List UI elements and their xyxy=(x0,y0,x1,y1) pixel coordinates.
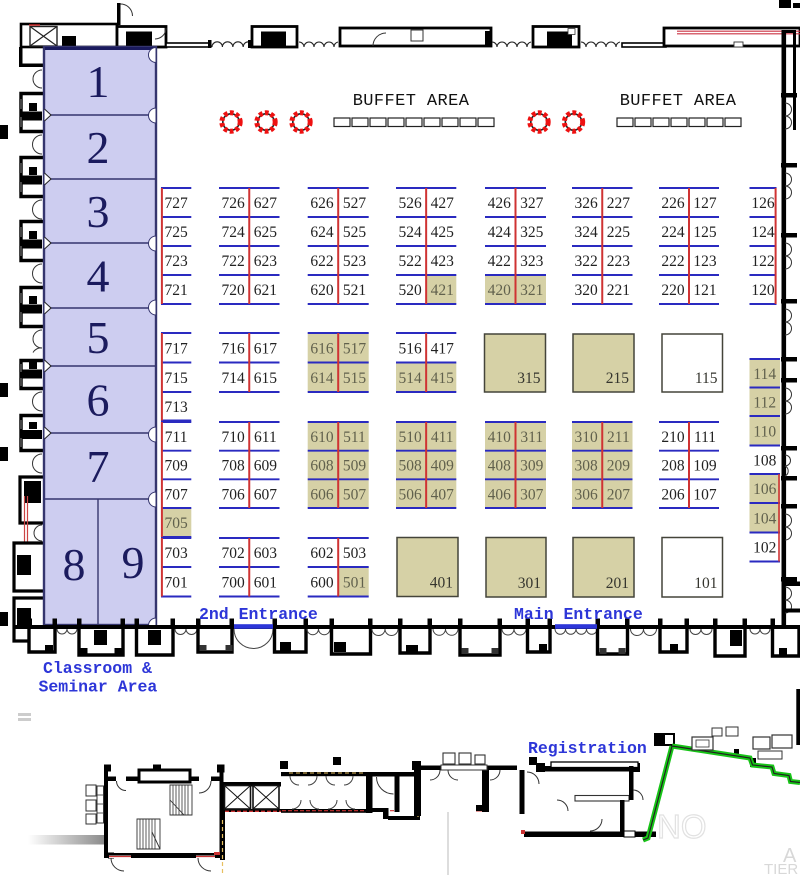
svg-text:501: 501 xyxy=(343,574,366,591)
svg-text:601: 601 xyxy=(254,574,277,591)
svg-text:717: 717 xyxy=(165,340,189,357)
svg-text:326: 326 xyxy=(575,195,599,212)
svg-text:209: 209 xyxy=(607,458,631,475)
svg-text:408: 408 xyxy=(488,458,512,475)
svg-text:Registration: Registration xyxy=(528,739,647,758)
svg-text:407: 407 xyxy=(431,486,455,503)
svg-text:115: 115 xyxy=(695,370,718,387)
svg-text:705: 705 xyxy=(165,515,189,532)
svg-text:420: 420 xyxy=(488,282,512,299)
svg-text:TIER: TIER xyxy=(764,861,798,875)
svg-text:417: 417 xyxy=(431,340,455,357)
svg-text:606: 606 xyxy=(310,486,334,503)
svg-text:716: 716 xyxy=(222,340,246,357)
svg-text:223: 223 xyxy=(607,253,631,270)
svg-text:120: 120 xyxy=(751,282,775,299)
svg-text:627: 627 xyxy=(254,195,278,212)
svg-text:107: 107 xyxy=(693,486,717,503)
svg-text:607: 607 xyxy=(254,486,278,503)
svg-text:711: 711 xyxy=(165,429,188,446)
svg-text:114: 114 xyxy=(753,366,776,383)
svg-text:315: 315 xyxy=(517,370,541,387)
svg-text:310: 310 xyxy=(575,429,599,446)
svg-text:621: 621 xyxy=(254,282,277,299)
svg-text:225: 225 xyxy=(607,224,631,241)
svg-text:714: 714 xyxy=(222,370,246,387)
svg-text:521: 521 xyxy=(343,282,366,299)
svg-text:324: 324 xyxy=(575,224,599,241)
svg-text:321: 321 xyxy=(520,282,543,299)
svg-text:507: 507 xyxy=(343,486,367,503)
svg-text:624: 624 xyxy=(310,224,334,241)
svg-text:701: 701 xyxy=(165,574,188,591)
svg-text:4: 4 xyxy=(87,251,110,302)
svg-text:122: 122 xyxy=(751,253,774,270)
svg-text:509: 509 xyxy=(343,458,367,475)
svg-text:7: 7 xyxy=(87,441,110,492)
svg-text:325: 325 xyxy=(520,224,544,241)
svg-text:525: 525 xyxy=(343,224,367,241)
svg-text:626: 626 xyxy=(310,195,334,212)
svg-text:121: 121 xyxy=(693,282,716,299)
svg-text:508: 508 xyxy=(398,458,422,475)
svg-text:608: 608 xyxy=(310,458,334,475)
svg-text:523: 523 xyxy=(343,253,367,270)
svg-text:111: 111 xyxy=(694,429,716,446)
svg-text:BUFFET AREA: BUFFET AREA xyxy=(620,92,737,111)
svg-text:2nd Entrance: 2nd Entrance xyxy=(199,605,318,624)
svg-text:721: 721 xyxy=(165,282,188,299)
svg-text:424: 424 xyxy=(488,224,512,241)
svg-text:101: 101 xyxy=(694,575,717,592)
svg-text:702: 702 xyxy=(222,545,245,562)
svg-text:401: 401 xyxy=(430,575,453,592)
svg-text:603: 603 xyxy=(254,545,278,562)
svg-text:709: 709 xyxy=(165,458,189,475)
svg-text:422: 422 xyxy=(488,253,511,270)
svg-text:617: 617 xyxy=(254,340,278,357)
svg-text:124: 124 xyxy=(751,224,775,241)
svg-text:NO: NO xyxy=(657,808,707,845)
svg-text:526: 526 xyxy=(398,195,422,212)
svg-text:301: 301 xyxy=(518,575,541,592)
svg-text:411: 411 xyxy=(431,429,454,446)
svg-text:510: 510 xyxy=(398,429,422,446)
svg-text:224: 224 xyxy=(661,224,685,241)
svg-text:8: 8 xyxy=(63,539,86,590)
svg-text:615: 615 xyxy=(254,370,278,387)
svg-text:727: 727 xyxy=(165,195,189,212)
svg-text:307: 307 xyxy=(520,486,544,503)
svg-text:511: 511 xyxy=(343,429,366,446)
svg-text:3: 3 xyxy=(87,186,110,237)
svg-text:622: 622 xyxy=(310,253,333,270)
svg-text:623: 623 xyxy=(254,253,278,270)
svg-text:206: 206 xyxy=(661,486,685,503)
svg-text:5: 5 xyxy=(87,312,110,363)
svg-text:Main Entrance: Main Entrance xyxy=(514,605,643,624)
svg-text:517: 517 xyxy=(343,340,367,357)
svg-text:320: 320 xyxy=(575,282,599,299)
svg-text:102: 102 xyxy=(753,540,776,557)
svg-text:123: 123 xyxy=(693,253,717,270)
svg-text:110: 110 xyxy=(753,423,776,440)
svg-text:609: 609 xyxy=(254,458,278,475)
svg-text:514: 514 xyxy=(398,370,422,387)
svg-text:127: 127 xyxy=(693,195,717,212)
svg-text:625: 625 xyxy=(254,224,278,241)
svg-text:201: 201 xyxy=(606,575,629,592)
svg-text:309: 309 xyxy=(520,458,544,475)
svg-text:713: 713 xyxy=(165,399,189,416)
svg-text:527: 527 xyxy=(343,195,367,212)
svg-text:700: 700 xyxy=(222,574,246,591)
svg-text:423: 423 xyxy=(431,253,455,270)
svg-text:610: 610 xyxy=(310,429,334,446)
svg-text:706: 706 xyxy=(222,486,246,503)
svg-text:720: 720 xyxy=(222,282,246,299)
svg-text:524: 524 xyxy=(398,224,422,241)
svg-text:707: 707 xyxy=(165,486,189,503)
svg-text:415: 415 xyxy=(431,370,455,387)
svg-text:323: 323 xyxy=(520,253,544,270)
svg-text:409: 409 xyxy=(431,458,455,475)
svg-text:503: 503 xyxy=(343,545,367,562)
svg-text:227: 227 xyxy=(607,195,631,212)
svg-text:406: 406 xyxy=(488,486,512,503)
svg-text:322: 322 xyxy=(575,253,598,270)
svg-text:226: 226 xyxy=(661,195,685,212)
svg-text:520: 520 xyxy=(398,282,422,299)
svg-text:427: 427 xyxy=(431,195,455,212)
svg-text:BUFFET AREA: BUFFET AREA xyxy=(353,92,470,111)
svg-text:106: 106 xyxy=(753,481,777,498)
svg-text:208: 208 xyxy=(661,458,685,475)
svg-text:421: 421 xyxy=(431,282,454,299)
svg-text:726: 726 xyxy=(222,195,246,212)
svg-text:Classroom &: Classroom & xyxy=(43,659,152,678)
svg-text:311: 311 xyxy=(520,429,543,446)
svg-text:327: 327 xyxy=(520,195,544,212)
svg-text:710: 710 xyxy=(222,429,246,446)
svg-text:125: 125 xyxy=(693,224,717,241)
svg-text:611: 611 xyxy=(254,429,277,446)
svg-text:516: 516 xyxy=(398,340,422,357)
svg-text:9: 9 xyxy=(122,537,145,588)
svg-text:600: 600 xyxy=(310,574,334,591)
svg-text:211: 211 xyxy=(607,429,630,446)
svg-text:1: 1 xyxy=(87,56,110,107)
svg-text:Seminar Area: Seminar Area xyxy=(39,678,158,697)
svg-text:515: 515 xyxy=(343,370,367,387)
svg-text:306: 306 xyxy=(575,486,599,503)
svg-text:215: 215 xyxy=(606,370,630,387)
svg-text:426: 426 xyxy=(488,195,512,212)
svg-text:220: 220 xyxy=(661,282,685,299)
svg-text:715: 715 xyxy=(165,370,189,387)
svg-text:108: 108 xyxy=(753,452,777,469)
svg-text:210: 210 xyxy=(661,429,685,446)
svg-text:109: 109 xyxy=(693,458,717,475)
svg-text:723: 723 xyxy=(165,253,189,270)
svg-text:112: 112 xyxy=(753,394,776,411)
svg-text:6: 6 xyxy=(87,375,110,426)
svg-text:708: 708 xyxy=(222,458,246,475)
svg-text:126: 126 xyxy=(751,195,775,212)
svg-text:104: 104 xyxy=(753,510,777,527)
svg-text:722: 722 xyxy=(222,253,245,270)
svg-text:2: 2 xyxy=(87,122,110,173)
svg-text:616: 616 xyxy=(310,340,334,357)
svg-text:703: 703 xyxy=(165,545,189,562)
svg-text:614: 614 xyxy=(310,370,334,387)
svg-text:207: 207 xyxy=(607,486,631,503)
svg-text:522: 522 xyxy=(398,253,421,270)
svg-text:425: 425 xyxy=(431,224,455,241)
svg-text:725: 725 xyxy=(165,224,189,241)
svg-text:222: 222 xyxy=(661,253,684,270)
svg-text:724: 724 xyxy=(222,224,246,241)
svg-text:308: 308 xyxy=(575,458,599,475)
svg-text:506: 506 xyxy=(398,486,422,503)
svg-text:410: 410 xyxy=(488,429,512,446)
svg-text:602: 602 xyxy=(310,545,333,562)
svg-text:221: 221 xyxy=(607,282,630,299)
svg-text:620: 620 xyxy=(310,282,334,299)
